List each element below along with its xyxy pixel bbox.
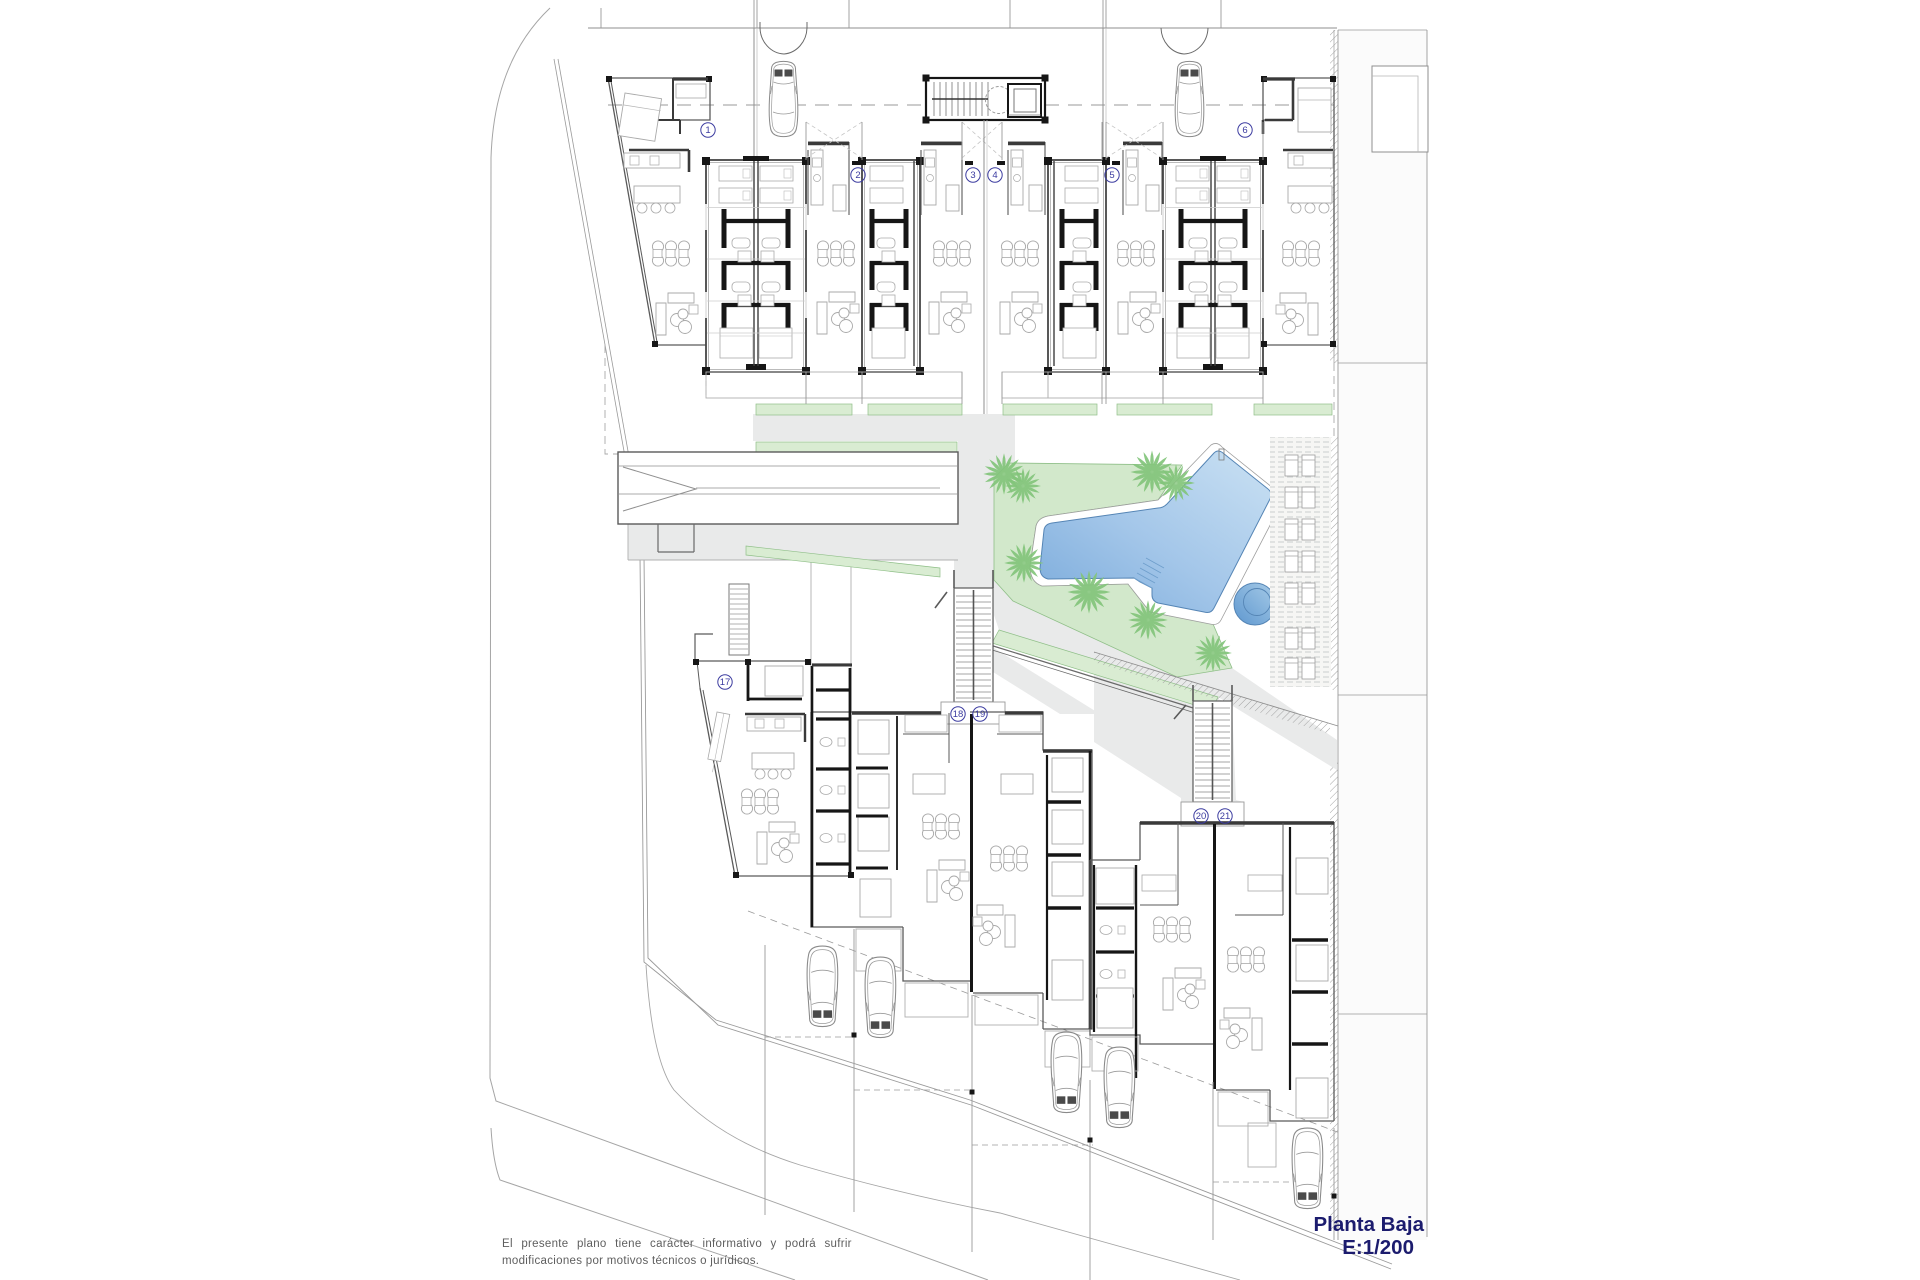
svg-text:5: 5 bbox=[1109, 170, 1114, 181]
svg-text:19: 19 bbox=[975, 709, 986, 720]
svg-text:1: 1 bbox=[705, 125, 710, 136]
svg-text:4: 4 bbox=[992, 170, 997, 181]
svg-text:18: 18 bbox=[953, 709, 964, 720]
svg-text:E:1/200: E:1/200 bbox=[1342, 1236, 1414, 1259]
svg-text:17: 17 bbox=[720, 677, 731, 688]
svg-text:Planta Baja: Planta Baja bbox=[1313, 1213, 1424, 1236]
svg-text:modificaciones por motivos téc: modificaciones por motivos técnicos o ju… bbox=[502, 1255, 759, 1267]
svg-text:2: 2 bbox=[855, 170, 860, 181]
svg-text:3: 3 bbox=[970, 170, 975, 181]
svg-text:21: 21 bbox=[1220, 811, 1231, 822]
svg-text:6: 6 bbox=[1242, 125, 1247, 136]
svg-text:20: 20 bbox=[1196, 811, 1207, 822]
svg-text:El presente plano tiene ca: El presente plano tiene carácter informa… bbox=[502, 1238, 852, 1250]
